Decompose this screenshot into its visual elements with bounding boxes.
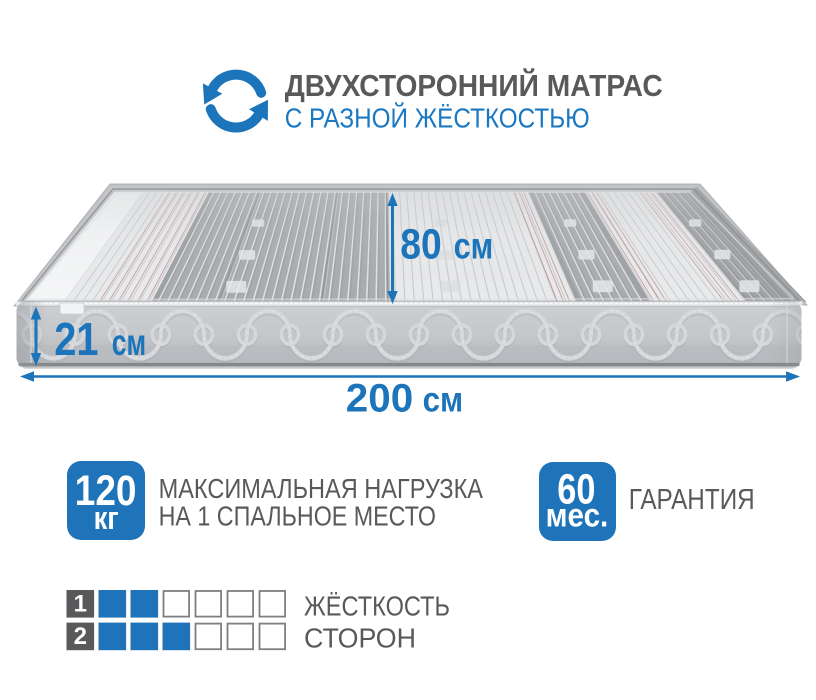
svg-text:1: 1 xyxy=(74,591,87,618)
svg-text:мес.: мес. xyxy=(546,498,609,535)
svg-text:МАКСИМАЛЬНАЯ НАГРУЗКА: МАКСИМАЛЬНАЯ НАГРУЗКА xyxy=(159,473,484,504)
svg-text:С РАЗНОЙ ЖЁСТКОСТЬЮ: С РАЗНОЙ ЖЁСТКОСТЬЮ xyxy=(285,102,590,133)
svg-text:НА 1 СПАЛЬНОЕ МЕСТО: НА 1 СПАЛЬНОЕ МЕСТО xyxy=(159,501,436,532)
svg-text:ЖЁСТКОСТЬ: ЖЁСТКОСТЬ xyxy=(304,591,450,622)
svg-text:80: 80 xyxy=(400,221,441,269)
svg-text:200: 200 xyxy=(346,376,413,420)
svg-text:2: 2 xyxy=(74,623,87,650)
svg-text:ГАРАНТИЯ: ГАРАНТИЯ xyxy=(629,483,755,515)
svg-text:см: см xyxy=(423,380,464,419)
svg-text:21: 21 xyxy=(54,313,98,365)
svg-text:см: см xyxy=(112,321,146,363)
svg-text:СТОРОН: СТОРОН xyxy=(304,623,416,654)
svg-text:см: см xyxy=(454,225,494,267)
svg-text:кг: кг xyxy=(94,499,119,536)
svg-text:ДВУХСТОРОННИЙ МАТРАС: ДВУХСТОРОННИЙ МАТРАС xyxy=(285,67,663,103)
